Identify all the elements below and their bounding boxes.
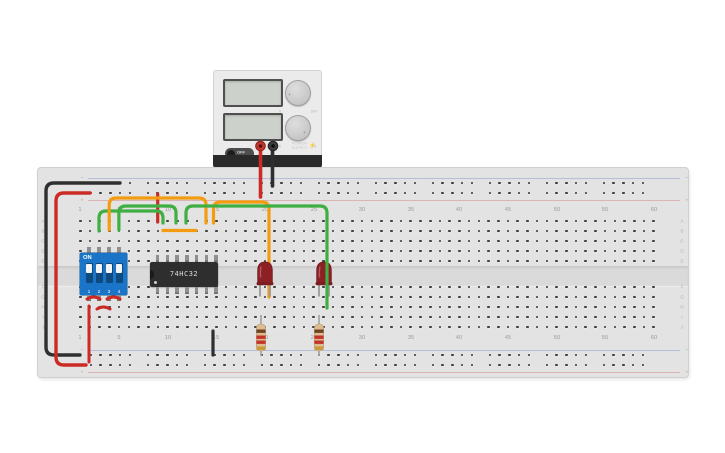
breadboard-hole[interactable] <box>215 220 218 223</box>
breadboard-hole[interactable] <box>584 286 587 289</box>
breadboard-hole[interactable] <box>283 286 286 289</box>
breadboard-hole[interactable] <box>147 250 150 253</box>
breadboard-hole[interactable] <box>99 182 102 185</box>
breadboard-hole[interactable] <box>409 240 412 243</box>
breadboard-hole[interactable] <box>546 326 549 329</box>
breadboard-hole[interactable] <box>89 306 92 309</box>
breadboard-hole[interactable] <box>186 364 189 367</box>
breadboard-hole[interactable] <box>186 306 189 309</box>
breadboard-hole[interactable] <box>166 240 169 243</box>
breadboard-hole[interactable] <box>448 306 451 309</box>
breadboard-hole[interactable] <box>186 220 189 223</box>
breadboard-hole[interactable] <box>108 316 111 319</box>
breadboard-hole[interactable] <box>497 326 500 329</box>
breadboard-hole[interactable] <box>612 354 615 357</box>
breadboard-hole[interactable] <box>244 306 247 309</box>
breadboard-hole[interactable] <box>351 306 354 309</box>
breadboard-hole[interactable] <box>394 192 397 195</box>
breadboard-hole[interactable] <box>409 286 412 289</box>
breadboard-hole[interactable] <box>584 260 587 263</box>
breadboard-hole[interactable] <box>254 306 257 309</box>
breadboard-hole[interactable] <box>419 240 422 243</box>
breadboard-hole[interactable] <box>633 230 636 233</box>
breadboard-hole[interactable] <box>186 182 189 185</box>
breadboard-hole[interactable] <box>546 250 549 253</box>
breadboard-hole[interactable] <box>555 306 558 309</box>
breadboard-hole[interactable] <box>225 260 228 263</box>
breadboard-hole[interactable] <box>441 354 444 357</box>
breadboard-hole[interactable] <box>128 286 131 289</box>
breadboard-hole[interactable] <box>79 220 82 223</box>
breadboard-hole[interactable] <box>555 316 558 319</box>
breadboard-hole[interactable] <box>186 240 189 243</box>
breadboard-hole[interactable] <box>128 250 131 253</box>
breadboard-hole[interactable] <box>261 182 264 185</box>
breadboard-hole[interactable] <box>507 286 510 289</box>
dip-slider-1[interactable] <box>86 263 93 283</box>
breadboard-hole[interactable] <box>468 326 471 329</box>
breadboard-hole[interactable] <box>380 230 383 233</box>
breadboard-hole[interactable] <box>478 250 481 253</box>
breadboard-hole[interactable] <box>404 182 407 185</box>
breadboard-hole[interactable] <box>300 192 303 195</box>
breadboard-hole[interactable] <box>507 230 510 233</box>
breadboard-hole[interactable] <box>128 296 131 299</box>
breadboard-hole[interactable] <box>380 260 383 263</box>
breadboard-hole[interactable] <box>254 286 257 289</box>
breadboard-hole[interactable] <box>196 316 199 319</box>
breadboard-hole[interactable] <box>147 306 150 309</box>
breadboard-hole[interactable] <box>341 230 344 233</box>
breadboard-hole[interactable] <box>337 192 340 195</box>
breadboard-hole[interactable] <box>98 230 101 233</box>
breadboard-hole[interactable] <box>623 230 626 233</box>
breadboard-hole[interactable] <box>633 286 636 289</box>
breadboard-hole[interactable] <box>429 326 432 329</box>
breadboard-hole[interactable] <box>204 354 207 357</box>
breadboard-hole[interactable] <box>546 364 549 367</box>
breadboard-hole[interactable] <box>458 316 461 319</box>
breadboard-hole[interactable] <box>119 192 122 195</box>
breadboard-hole[interactable] <box>351 316 354 319</box>
breadboard-hole[interactable] <box>380 296 383 299</box>
breadboard-hole[interactable] <box>261 364 264 367</box>
breadboard-hole[interactable] <box>196 326 199 329</box>
breadboard-hole[interactable] <box>129 192 132 195</box>
breadboard-hole[interactable] <box>318 354 321 357</box>
breadboard-hole[interactable] <box>414 364 417 367</box>
breadboard-hole[interactable] <box>555 220 558 223</box>
breadboard-hole[interactable] <box>254 220 257 223</box>
breadboard-hole[interactable] <box>448 316 451 319</box>
breadboard-hole[interactable] <box>283 326 286 329</box>
breadboard-hole[interactable] <box>516 240 519 243</box>
breadboard-hole[interactable] <box>118 316 121 319</box>
breadboard-hole[interactable] <box>429 286 432 289</box>
breadboard-hole[interactable] <box>439 230 442 233</box>
breadboard-hole[interactable] <box>555 326 558 329</box>
breadboard-hole[interactable] <box>643 260 646 263</box>
breadboard-hole[interactable] <box>448 286 451 289</box>
breadboard-hole[interactable] <box>303 230 306 233</box>
breadboard-hole[interactable] <box>196 220 199 223</box>
breadboard-hole[interactable] <box>555 192 558 195</box>
breadboard-hole[interactable] <box>623 286 626 289</box>
breadboard-hole[interactable] <box>156 192 159 195</box>
breadboard-hole[interactable] <box>233 354 236 357</box>
breadboard-hole[interactable] <box>341 316 344 319</box>
breadboard-hole[interactable] <box>312 220 315 223</box>
breadboard-hole[interactable] <box>390 250 393 253</box>
breadboard-hole[interactable] <box>375 182 378 185</box>
breadboard-hole[interactable] <box>147 286 150 289</box>
breadboard-hole[interactable] <box>604 220 607 223</box>
breadboard-hole[interactable] <box>526 260 529 263</box>
breadboard-hole[interactable] <box>90 182 93 185</box>
breadboard-hole[interactable] <box>196 250 199 253</box>
breadboard-hole[interactable] <box>235 306 238 309</box>
breadboard-hole[interactable] <box>371 286 374 289</box>
breadboard-hole[interactable] <box>156 354 159 357</box>
breadboard-hole[interactable] <box>622 182 625 185</box>
breadboard-hole[interactable] <box>565 364 568 367</box>
breadboard-hole[interactable] <box>400 296 403 299</box>
breadboard-hole[interactable] <box>327 364 330 367</box>
breadboard-hole[interactable] <box>498 364 501 367</box>
breadboard-hole[interactable] <box>270 364 273 367</box>
breadboard-hole[interactable] <box>487 250 490 253</box>
breadboard-hole[interactable] <box>128 260 131 263</box>
breadboard-hole[interactable] <box>528 182 531 185</box>
breadboard-hole[interactable] <box>176 296 179 299</box>
breadboard-hole[interactable] <box>90 364 93 367</box>
breadboard-hole[interactable] <box>129 182 132 185</box>
breadboard-hole[interactable] <box>458 286 461 289</box>
breadboard-hole[interactable] <box>643 250 646 253</box>
breadboard-hole[interactable] <box>409 296 412 299</box>
breadboard-hole[interactable] <box>584 230 587 233</box>
breadboard-hole[interactable] <box>526 250 529 253</box>
breadboard-hole[interactable] <box>273 316 276 319</box>
breadboard-hole[interactable] <box>215 316 218 319</box>
breadboard-hole[interactable] <box>137 306 140 309</box>
breadboard-hole[interactable] <box>575 182 578 185</box>
breadboard-hole[interactable] <box>147 260 150 263</box>
breadboard-hole[interactable] <box>79 326 82 329</box>
breadboard-hole[interactable] <box>332 296 335 299</box>
breadboard-hole[interactable] <box>157 250 160 253</box>
breadboard-hole[interactable] <box>332 250 335 253</box>
breadboard-hole[interactable] <box>614 286 617 289</box>
breadboard-hole[interactable] <box>526 286 529 289</box>
breadboard-hole[interactable] <box>99 364 102 367</box>
breadboard-hole[interactable] <box>516 306 519 309</box>
breadboard-hole[interactable] <box>332 240 335 243</box>
breadboard-hole[interactable] <box>243 182 246 185</box>
breadboard-hole[interactable] <box>594 240 597 243</box>
breadboard-hole[interactable] <box>332 306 335 309</box>
breadboard-hole[interactable] <box>516 286 519 289</box>
breadboard-hole[interactable] <box>471 364 474 367</box>
breadboard-hole[interactable] <box>584 250 587 253</box>
breadboard-hole[interactable] <box>273 220 276 223</box>
breadboard-hole[interactable] <box>614 296 617 299</box>
breadboard-hole[interactable] <box>478 296 481 299</box>
breadboard-hole[interactable] <box>280 364 283 367</box>
breadboard-hole[interactable] <box>497 296 500 299</box>
breadboard-hole[interactable] <box>555 182 558 185</box>
breadboard-hole[interactable] <box>261 192 264 195</box>
breadboard-hole[interactable] <box>176 240 179 243</box>
breadboard-hole[interactable] <box>441 192 444 195</box>
breadboard-hole[interactable] <box>283 306 286 309</box>
breadboard-hole[interactable] <box>312 260 315 263</box>
breadboard-hole[interactable] <box>439 240 442 243</box>
breadboard-hole[interactable] <box>546 182 549 185</box>
breadboard-hole[interactable] <box>643 230 646 233</box>
breadboard-hole[interactable] <box>612 182 615 185</box>
breadboard-hole[interactable] <box>243 354 246 357</box>
breadboard-hole[interactable] <box>79 250 82 253</box>
breadboard-hole[interactable] <box>603 364 606 367</box>
breadboard-hole[interactable] <box>157 326 160 329</box>
breadboard-hole[interactable] <box>213 354 216 357</box>
breadboard-hole[interactable] <box>128 230 131 233</box>
breadboard-hole[interactable] <box>361 326 364 329</box>
breadboard-hole[interactable] <box>235 240 238 243</box>
breadboard-hole[interactable] <box>215 240 218 243</box>
breadboard-hole[interactable] <box>478 326 481 329</box>
breadboard-hole[interactable] <box>584 240 587 243</box>
breadboard-hole[interactable] <box>380 326 383 329</box>
breadboard-hole[interactable] <box>243 364 246 367</box>
breadboard-hole[interactable] <box>487 316 490 319</box>
breadboard-hole[interactable] <box>604 306 607 309</box>
breadboard-hole[interactable] <box>283 240 286 243</box>
breadboard-hole[interactable] <box>575 326 578 329</box>
breadboard-hole[interactable] <box>400 250 403 253</box>
breadboard-hole[interactable] <box>448 230 451 233</box>
breadboard-hole[interactable] <box>166 250 169 253</box>
breadboard-hole[interactable] <box>400 220 403 223</box>
breadboard-hole[interactable] <box>303 326 306 329</box>
breadboard-hole[interactable] <box>451 364 454 367</box>
dip-switch[interactable]: ON 1 2 3 4 <box>80 253 127 295</box>
breadboard-hole[interactable] <box>614 306 617 309</box>
breadboard-hole[interactable] <box>643 220 646 223</box>
breadboard-hole[interactable] <box>439 220 442 223</box>
breadboard-hole[interactable] <box>303 316 306 319</box>
breadboard-hole[interactable] <box>225 316 228 319</box>
breadboard-hole[interactable] <box>594 306 597 309</box>
breadboard-hole[interactable] <box>225 296 228 299</box>
breadboard-hole[interactable] <box>347 182 350 185</box>
breadboard-hole[interactable] <box>341 260 344 263</box>
breadboard-hole[interactable] <box>332 260 335 263</box>
breadboard-hole[interactable] <box>575 306 578 309</box>
current-knob[interactable]: + <box>285 115 311 141</box>
breadboard-hole[interactable] <box>98 316 101 319</box>
breadboard-hole[interactable] <box>371 326 374 329</box>
breadboard-hole[interactable] <box>632 364 635 367</box>
breadboard-hole[interactable] <box>603 182 606 185</box>
breadboard-hole[interactable] <box>176 326 179 329</box>
breadboard-hole[interactable] <box>157 296 160 299</box>
breadboard-hole[interactable] <box>575 316 578 319</box>
breadboard-hole[interactable] <box>361 260 364 263</box>
breadboard-hole[interactable] <box>166 182 169 185</box>
breadboard-hole[interactable] <box>176 220 179 223</box>
breadboard-hole[interactable] <box>166 326 169 329</box>
breadboard-hole[interactable] <box>290 182 293 185</box>
breadboard-hole[interactable] <box>390 230 393 233</box>
breadboard-hole[interactable] <box>390 286 393 289</box>
breadboard-hole[interactable] <box>652 220 655 223</box>
breadboard-hole[interactable] <box>371 296 374 299</box>
breadboard-hole[interactable] <box>487 286 490 289</box>
breadboard-hole[interactable] <box>186 296 189 299</box>
breadboard-hole[interactable] <box>300 182 303 185</box>
breadboard-hole[interactable] <box>555 354 558 357</box>
breadboard-hole[interactable] <box>215 250 218 253</box>
breadboard-hole[interactable] <box>166 220 169 223</box>
breadboard-hole[interactable] <box>361 296 364 299</box>
breadboard-hole[interactable] <box>497 260 500 263</box>
breadboard-hole[interactable] <box>332 286 335 289</box>
breadboard-hole[interactable] <box>290 364 293 367</box>
breadboard-hole[interactable] <box>458 296 461 299</box>
breadboard-hole[interactable] <box>341 306 344 309</box>
power-supply[interactable]: + + 0 30V 0 1A OFF POWER SUPPLY ⚡ <box>213 70 322 156</box>
breadboard-hole[interactable] <box>458 230 461 233</box>
breadboard-hole[interactable] <box>244 326 247 329</box>
breadboard-hole[interactable] <box>526 230 529 233</box>
breadboard-hole[interactable] <box>90 354 93 357</box>
breadboard-hole[interactable] <box>351 240 354 243</box>
breadboard-hole[interactable] <box>507 306 510 309</box>
breadboard-hole[interactable] <box>254 250 257 253</box>
breadboard-hole[interactable] <box>536 230 539 233</box>
breadboard-hole[interactable] <box>642 354 645 357</box>
breadboard-hole[interactable] <box>322 220 325 223</box>
breadboard-hole[interactable] <box>332 316 335 319</box>
breadboard-hole[interactable] <box>244 286 247 289</box>
breadboard-hole[interactable] <box>429 250 432 253</box>
breadboard-hole[interactable] <box>585 354 588 357</box>
breadboard-hole[interactable] <box>497 250 500 253</box>
breadboard-hole[interactable] <box>186 326 189 329</box>
breadboard-hole[interactable] <box>312 230 315 233</box>
breadboard-hole[interactable] <box>225 250 228 253</box>
breadboard-hole[interactable] <box>204 192 207 195</box>
breadboard-hole[interactable] <box>357 192 360 195</box>
breadboard-hole[interactable] <box>119 354 122 357</box>
breadboard-hole[interactable] <box>612 192 615 195</box>
breadboard-hole[interactable] <box>261 354 264 357</box>
breadboard-hole[interactable] <box>565 240 568 243</box>
breadboard-hole[interactable] <box>351 286 354 289</box>
breadboard-hole[interactable] <box>322 240 325 243</box>
breadboard-hole[interactable] <box>516 260 519 263</box>
breadboard-hole[interactable] <box>507 326 510 329</box>
breadboard-hole[interactable] <box>518 364 521 367</box>
breadboard-hole[interactable] <box>79 296 82 299</box>
breadboard-hole[interactable] <box>565 316 568 319</box>
breadboard-hole[interactable] <box>448 326 451 329</box>
breadboard-hole[interactable] <box>337 182 340 185</box>
breadboard-hole[interactable] <box>584 326 587 329</box>
breadboard-hole[interactable] <box>575 240 578 243</box>
breadboard-hole[interactable] <box>205 316 208 319</box>
breadboard-hole[interactable] <box>244 296 247 299</box>
breadboard-hole[interactable] <box>303 286 306 289</box>
breadboard-hole[interactable] <box>508 364 511 367</box>
breadboard-hole[interactable] <box>448 250 451 253</box>
breadboard-hole[interactable] <box>318 192 321 195</box>
breadboard-hole[interactable] <box>89 230 92 233</box>
breadboard-hole[interactable] <box>633 260 636 263</box>
breadboard-hole[interactable] <box>498 192 501 195</box>
breadboard-hole[interactable] <box>244 260 247 263</box>
breadboard-hole[interactable] <box>235 250 238 253</box>
breadboard-hole[interactable] <box>147 192 150 195</box>
breadboard-hole[interactable] <box>98 326 101 329</box>
breadboard-hole[interactable] <box>351 220 354 223</box>
breadboard-hole[interactable] <box>318 364 321 367</box>
breadboard-hole[interactable] <box>439 316 442 319</box>
breadboard-hole[interactable] <box>89 316 92 319</box>
breadboard-hole[interactable] <box>166 192 169 195</box>
breadboard-hole[interactable] <box>429 296 432 299</box>
breadboard-hole[interactable] <box>293 260 296 263</box>
breadboard-hole[interactable] <box>375 354 378 357</box>
breadboard-hole[interactable] <box>156 364 159 367</box>
breadboard-hole[interactable] <box>419 306 422 309</box>
breadboard-hole[interactable] <box>186 230 189 233</box>
breadboard-hole[interactable] <box>584 220 587 223</box>
breadboard-hole[interactable] <box>347 354 350 357</box>
breadboard-hole[interactable] <box>546 260 549 263</box>
breadboard-hole[interactable] <box>147 364 150 367</box>
breadboard-hole[interactable] <box>223 182 226 185</box>
breadboard-hole[interactable] <box>461 364 464 367</box>
breadboard-hole[interactable] <box>584 316 587 319</box>
breadboard-hole[interactable] <box>322 260 325 263</box>
breadboard-hole[interactable] <box>147 182 150 185</box>
breadboard-hole[interactable] <box>439 286 442 289</box>
breadboard-hole[interactable] <box>414 192 417 195</box>
breadboard-hole[interactable] <box>536 306 539 309</box>
breadboard-hole[interactable] <box>166 354 169 357</box>
breadboard-hole[interactable] <box>147 326 150 329</box>
breadboard-hole[interactable] <box>225 240 228 243</box>
breadboard-hole[interactable] <box>614 316 617 319</box>
breadboard-hole[interactable] <box>555 296 558 299</box>
breadboard-hole[interactable] <box>109 182 112 185</box>
breadboard-hole[interactable] <box>565 250 568 253</box>
breadboard-hole[interactable] <box>419 260 422 263</box>
breadboard-hole[interactable] <box>244 240 247 243</box>
breadboard-hole[interactable] <box>575 296 578 299</box>
breadboard-hole[interactable] <box>642 192 645 195</box>
breadboard-hole[interactable] <box>623 260 626 263</box>
breadboard-hole[interactable] <box>137 240 140 243</box>
breadboard-hole[interactable] <box>223 364 226 367</box>
breadboard-hole[interactable] <box>419 296 422 299</box>
dip-slider-3[interactable] <box>106 263 113 283</box>
breadboard-hole[interactable] <box>235 296 238 299</box>
breadboard-hole[interactable] <box>283 220 286 223</box>
